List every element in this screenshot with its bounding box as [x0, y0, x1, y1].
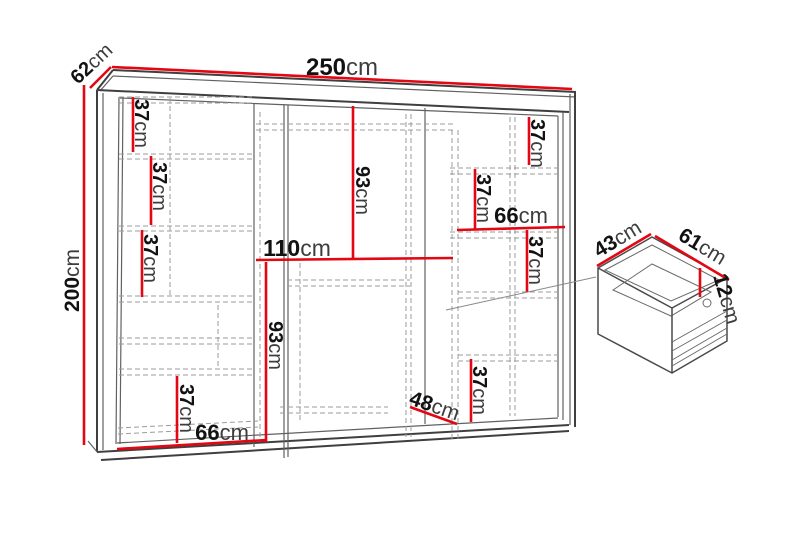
dim-label-mid-93-bottom: 93cm [264, 321, 286, 370]
dim-label-left-37-1: 37cm [130, 99, 152, 148]
dim-label-left-37-3: 37cm [139, 234, 161, 283]
dim-label-right-37-3: 37cm [524, 236, 546, 285]
dim-label-left-37-4: 37cm [175, 384, 197, 433]
dim-label-mid-93-top: 93cm [351, 166, 373, 215]
dim-label-width-250: 250cm [306, 54, 378, 81]
wardrobe-dimension-diagram: 250cm 62cm 200cm 37cm 37cm 37cm 37cm 66c… [0, 0, 800, 533]
dim-label-right-66: 66cm [494, 203, 548, 228]
dim-label-left-66: 66cm [195, 420, 249, 445]
dim-label-right-37-1: 37cm [526, 119, 548, 168]
dim-label-mid-110: 110cm [263, 235, 331, 261]
dim-label-left-37-2: 37cm [148, 162, 170, 211]
dim-label-height-200: 200cm [61, 249, 84, 312]
dim-label-mid-48: 48cm [406, 387, 462, 425]
drawer-diagram: 43cm 61cm 12cm [590, 216, 745, 373]
dim-label-right-37-2: 37cm [472, 174, 494, 223]
dim-label-drawer-43: 43cm [590, 216, 646, 262]
drawer-leader-line [446, 277, 596, 310]
drawer-screw-hole [703, 299, 711, 307]
diagram-canvas: 250cm 62cm 200cm 37cm 37cm 37cm 37cm 66c… [0, 0, 800, 533]
dim-label-depth-62: 62cm [66, 39, 117, 88]
dim-label-right-37-4: 37cm [468, 366, 490, 415]
